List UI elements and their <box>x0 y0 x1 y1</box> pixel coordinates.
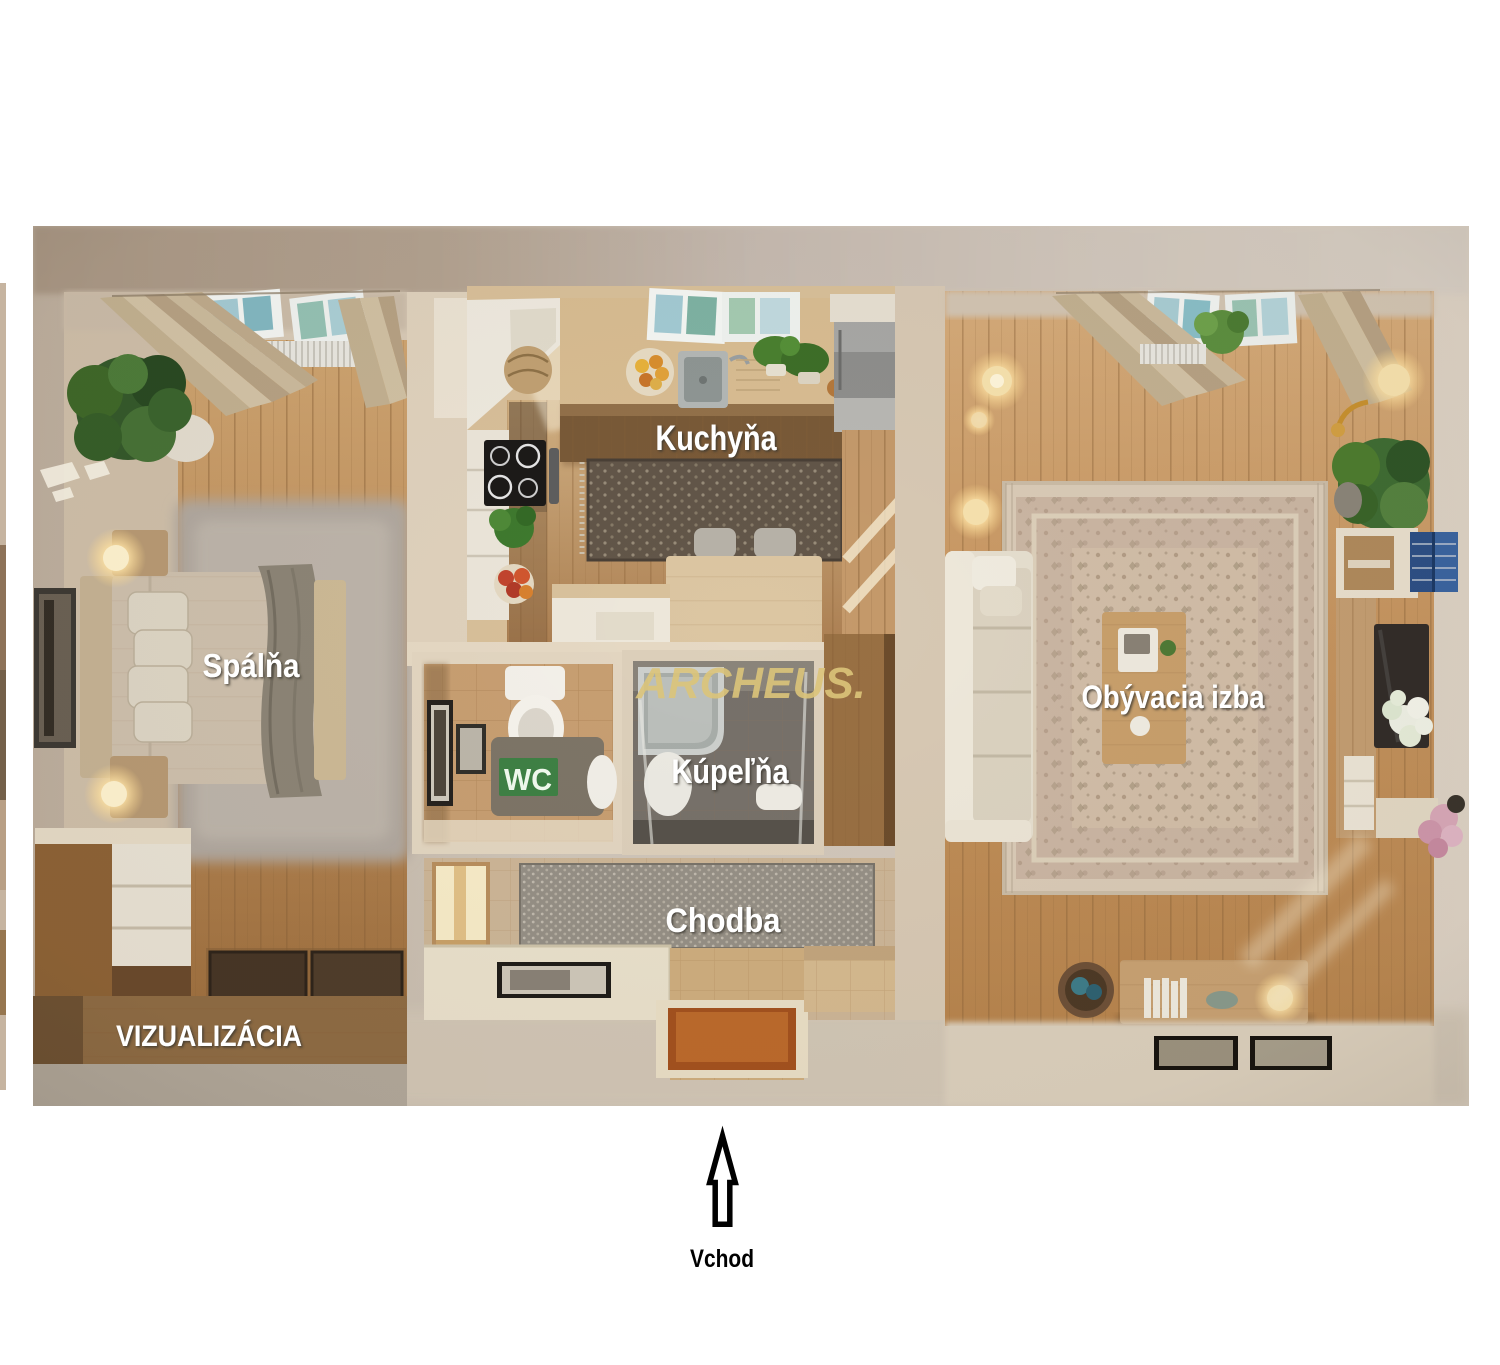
svg-text:Chodba: Chodba <box>666 902 782 940</box>
svg-text:Kuchyňa: Kuchyňa <box>656 419 777 458</box>
svg-text:Spálňa: Spálňa <box>203 647 301 684</box>
svg-text:Vchod: Vchod <box>690 1245 754 1273</box>
svg-text:Kúpeľňa: Kúpeľňa <box>672 753 790 791</box>
svg-text:Obývacia izba: Obývacia izba <box>1082 679 1265 715</box>
svg-text:VIZUALIZÁCIA: VIZUALIZÁCIA <box>116 1019 302 1053</box>
svg-text:ARCHEUS.: ARCHEUS. <box>635 659 866 708</box>
